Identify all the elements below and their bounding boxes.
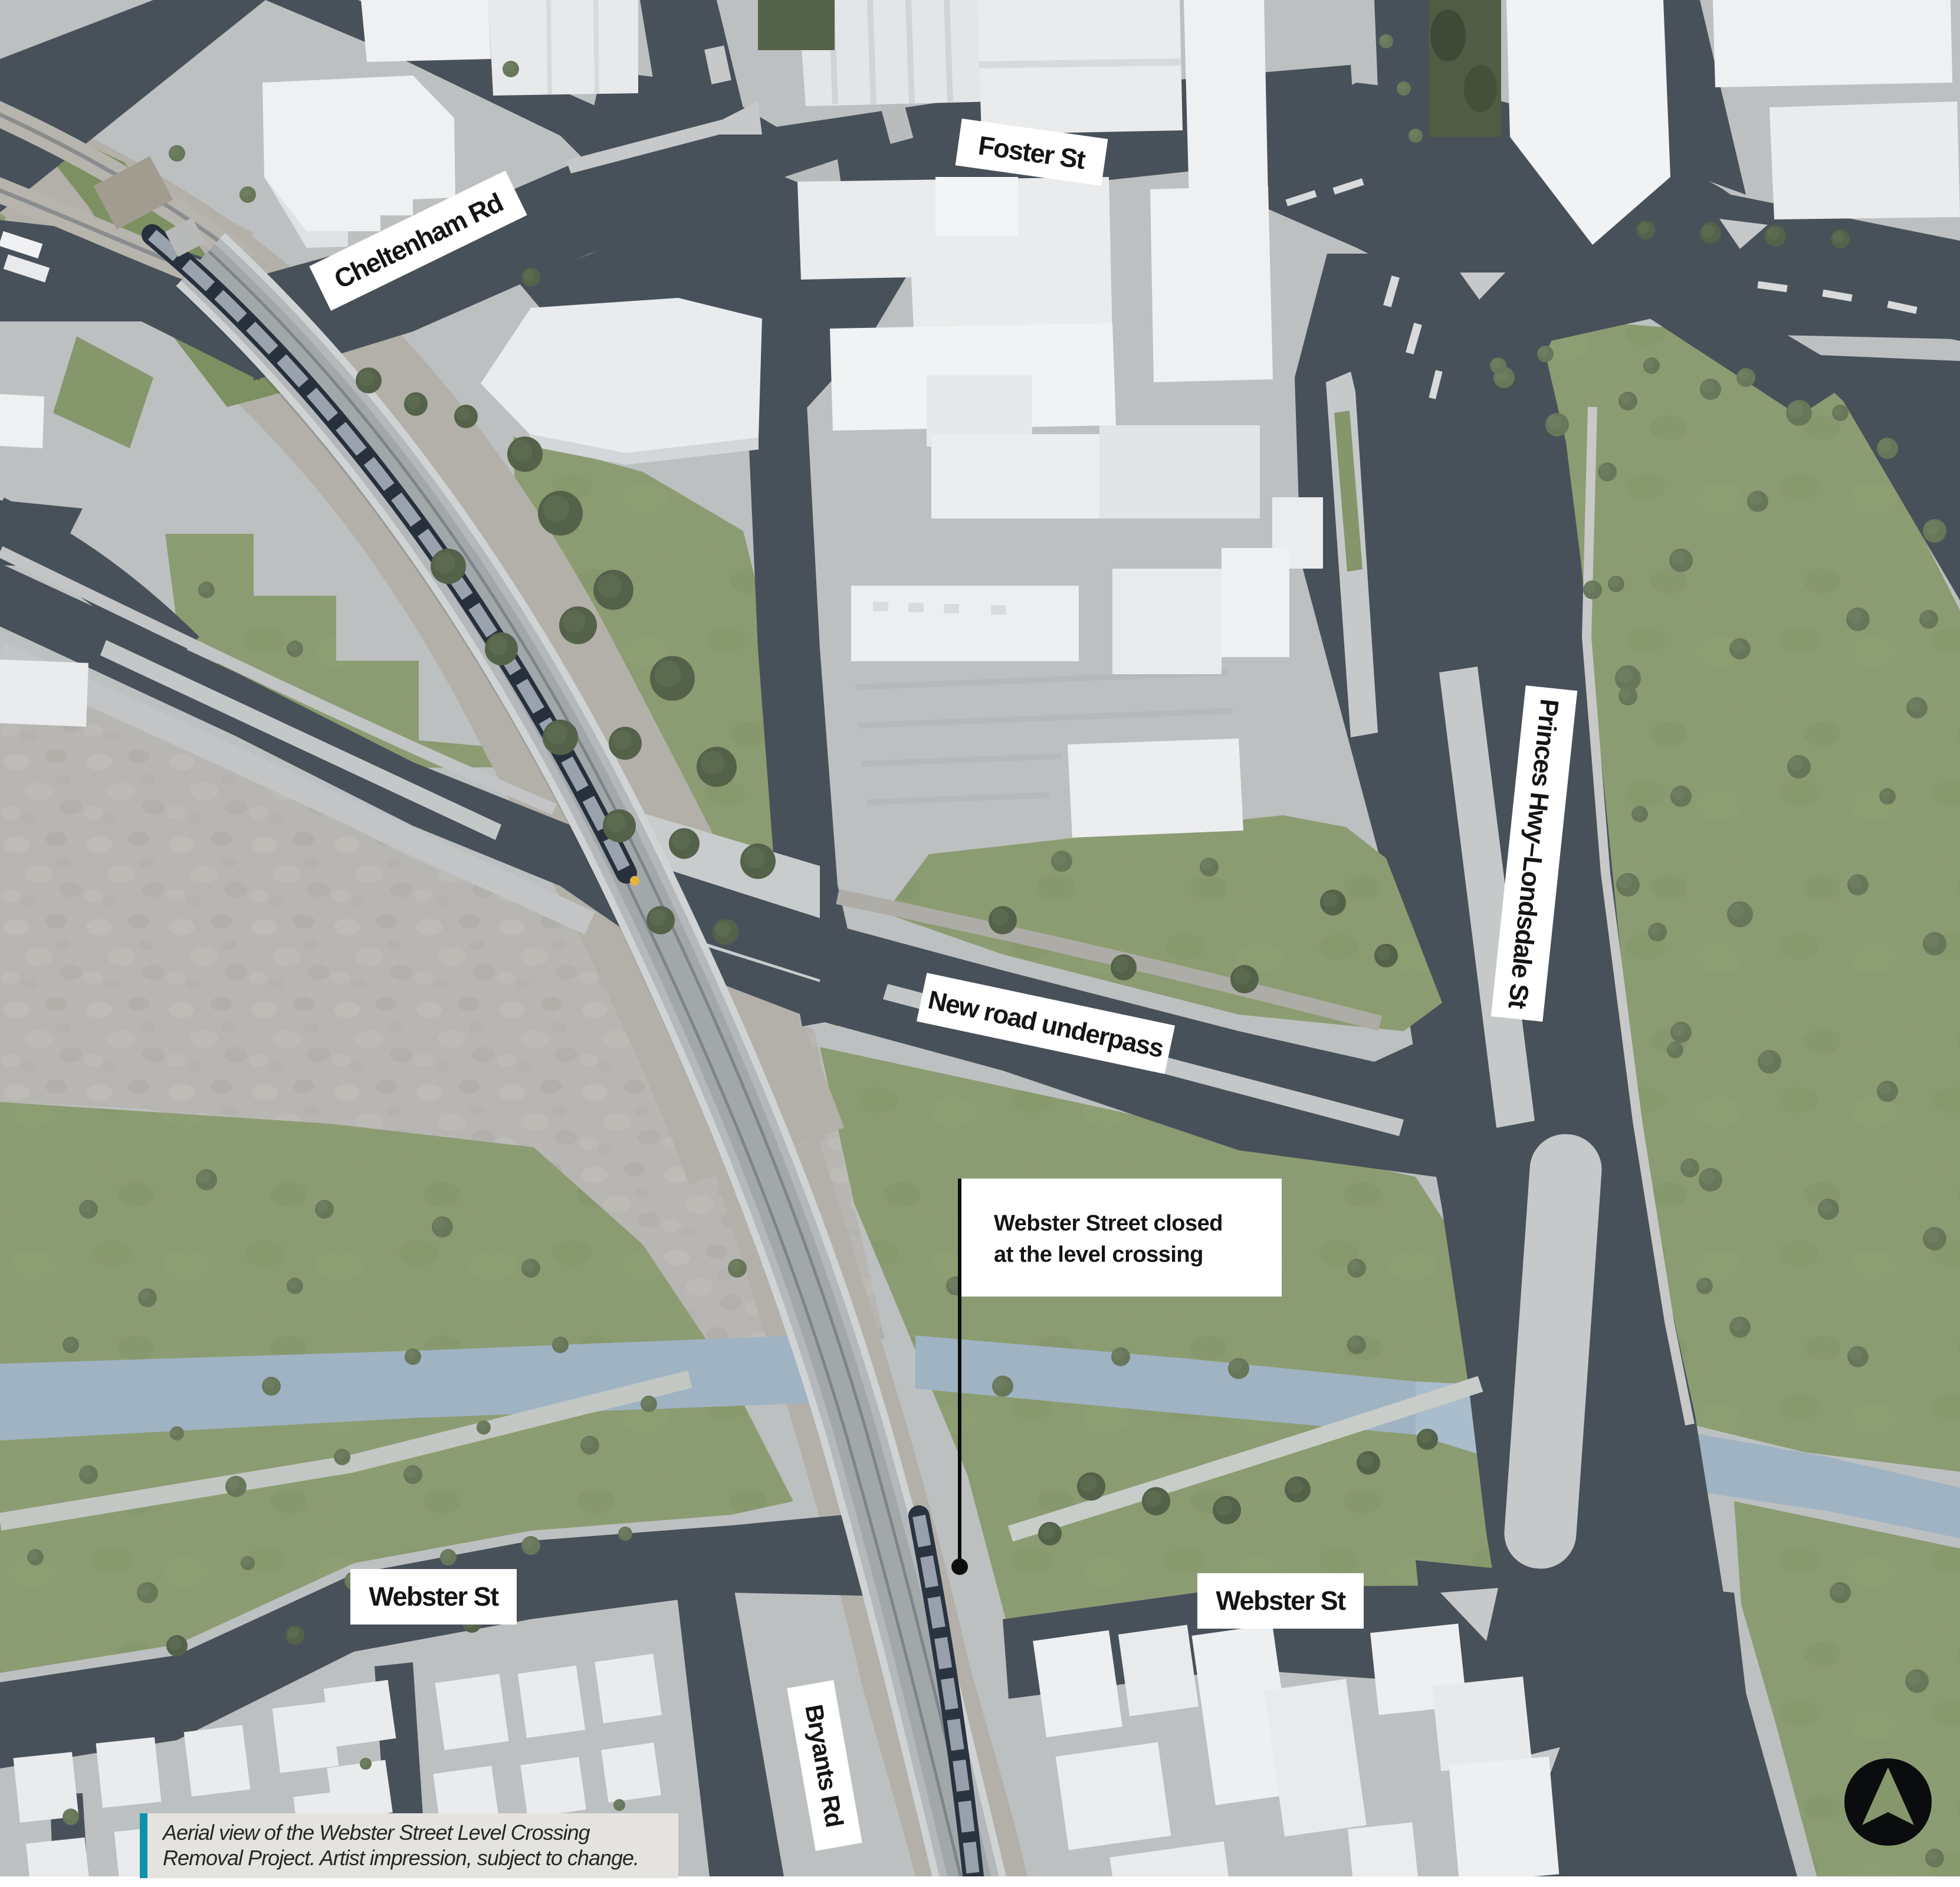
- svg-text:Webster St: Webster St: [1216, 1586, 1346, 1616]
- svg-text:Aerial view of the Webster Str: Aerial view of the Webster Street Level …: [162, 1820, 590, 1845]
- svg-text:at the level crossing: at the level crossing: [994, 1242, 1203, 1267]
- svg-text:Webster St: Webster St: [369, 1581, 499, 1612]
- svg-text:Webster Street closed: Webster Street closed: [994, 1211, 1223, 1236]
- svg-text:Removal Project. Artist impres: Removal Project. Artist impression, subj…: [163, 1846, 639, 1870]
